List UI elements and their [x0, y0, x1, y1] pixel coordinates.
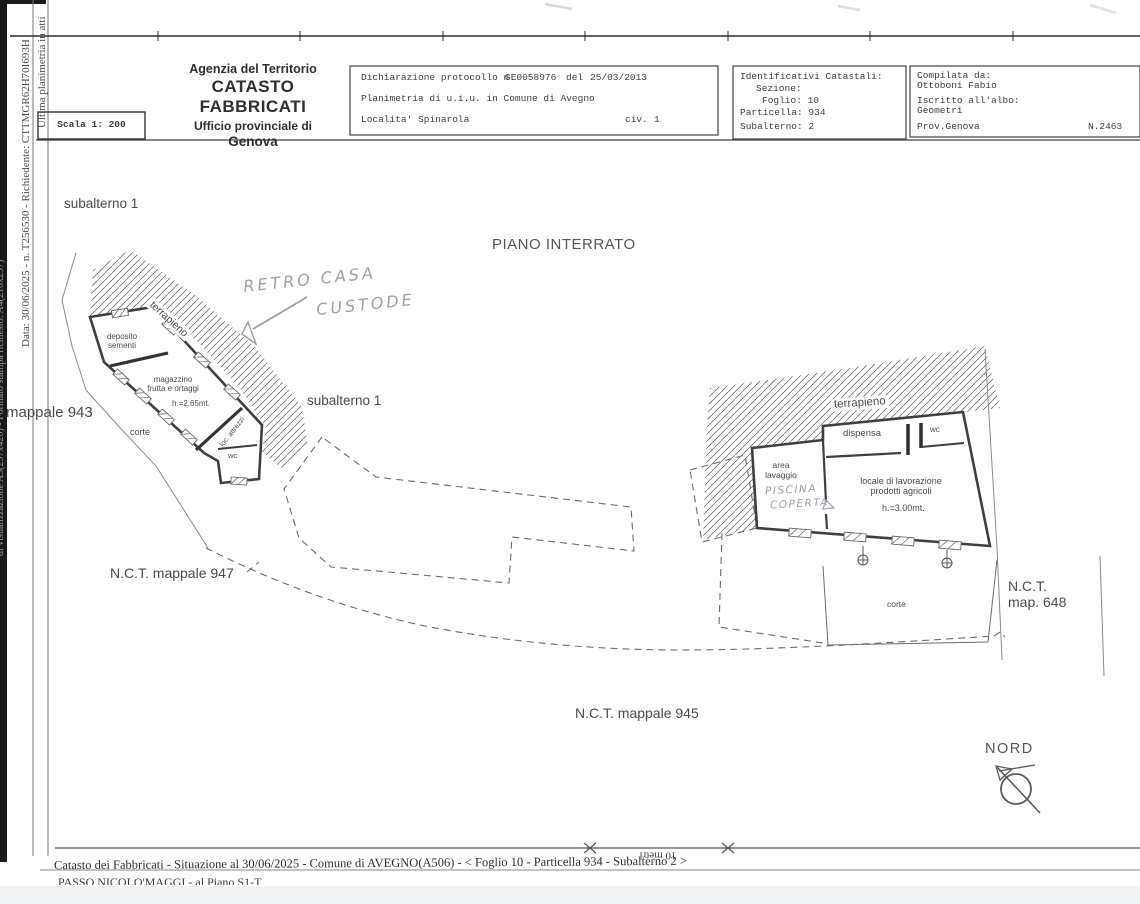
parcel-nct-648-line1: N.C.T.: [1008, 578, 1047, 594]
corte-left-label: corte: [130, 427, 150, 437]
subalterno-left-label: subalterno 1: [64, 196, 138, 212]
floor-title: PIANO INTERRATO: [492, 236, 636, 253]
room-dispensa: dispensa: [843, 429, 881, 440]
subalterno-center-label: subalterno 1: [307, 393, 381, 409]
corte-right-label: corte: [887, 600, 906, 610]
room-wc-right: wc: [930, 425, 940, 434]
agency-line3: Ufficio provinciale di: [163, 119, 343, 133]
parcel-mappale-943: mappale 943: [6, 404, 93, 421]
agency-title-block: Agenzia del Territorio CATASTO FABBRICAT…: [163, 62, 343, 149]
parcel-nct-945: N.C.T. mappale 945: [575, 705, 699, 721]
cadastral-plan-page: Ultima planimetria in atti Data: 30/06/2…: [0, 0, 1140, 904]
declaration-date: 25/03/2013: [590, 72, 647, 83]
door-symbols: [858, 546, 952, 568]
compiled-number: N.2463: [1088, 121, 1122, 132]
parcel-nct-947: N.C.T. mappale 947: [110, 565, 234, 581]
room-locale-lavorazione: locale di lavorazione prodotti agricoli: [843, 476, 959, 497]
room-wc-left: wc: [228, 452, 237, 461]
declaration-localita: Localita' Spinarola: [361, 114, 469, 125]
agency-line4: Genova: [163, 134, 343, 149]
declaration-protocol-number: GE0058976: [505, 72, 556, 83]
cadastral-sezione: Sezione:: [756, 83, 802, 94]
right-corte-boundary: [823, 560, 997, 645]
agency-line2: CATASTO FABBRICATI: [163, 77, 343, 117]
cadastral-title: Identificativi Catastali:: [740, 71, 883, 82]
north-compass-icon: [996, 765, 1040, 813]
cadastral-subalterno: Subalterno: 2: [740, 121, 814, 132]
sidebar-ultima-planimetria: Ultima planimetria in atti: [36, 17, 48, 129]
room-magazzino-height: h.=2.65mt.: [172, 399, 210, 408]
compiled-albo-value: Geometri: [917, 105, 963, 116]
declaration-civ-label: civ.: [625, 114, 648, 125]
agency-line1: Agenzia del Territorio: [163, 62, 343, 76]
room-area-lavaggio: area lavaggio: [755, 461, 807, 481]
cadastral-particella: Particella: 934: [740, 107, 826, 118]
declaration-planimetria: Planimetria di u.i.u. in Comune di Avegn…: [361, 93, 595, 104]
compiled-province: Prov.Genova: [917, 121, 980, 132]
parcel-nct-648-line2: map. 648: [1008, 594, 1066, 610]
scale-box-label: Scala 1: 200: [38, 119, 145, 130]
room-deposito: deposito sementi: [96, 332, 148, 350]
right-building: [752, 412, 997, 645]
north-label: NORD: [985, 741, 1034, 758]
declaration-del: del: [566, 72, 583, 83]
footer-truncated-line: PASSO NICOLO'MAGGI - al Piano S1-T: [58, 876, 478, 885]
room-locale-height: h.=3.00mt.: [882, 503, 925, 513]
cadastral-foglio: Foglio: 10: [762, 95, 819, 106]
sidebar-data-richiedente: Data: 30/06/2025 - n. T256530 - Richiede…: [20, 39, 32, 347]
compiled-name: Ottoboni Fabio: [917, 80, 997, 91]
room-magazzino: magazzino frutta e ortaggi: [136, 375, 210, 393]
declaration-civ-value: 1: [654, 114, 660, 125]
declaration-protocol-label: Dichiarazione protocollo n.: [361, 72, 515, 83]
